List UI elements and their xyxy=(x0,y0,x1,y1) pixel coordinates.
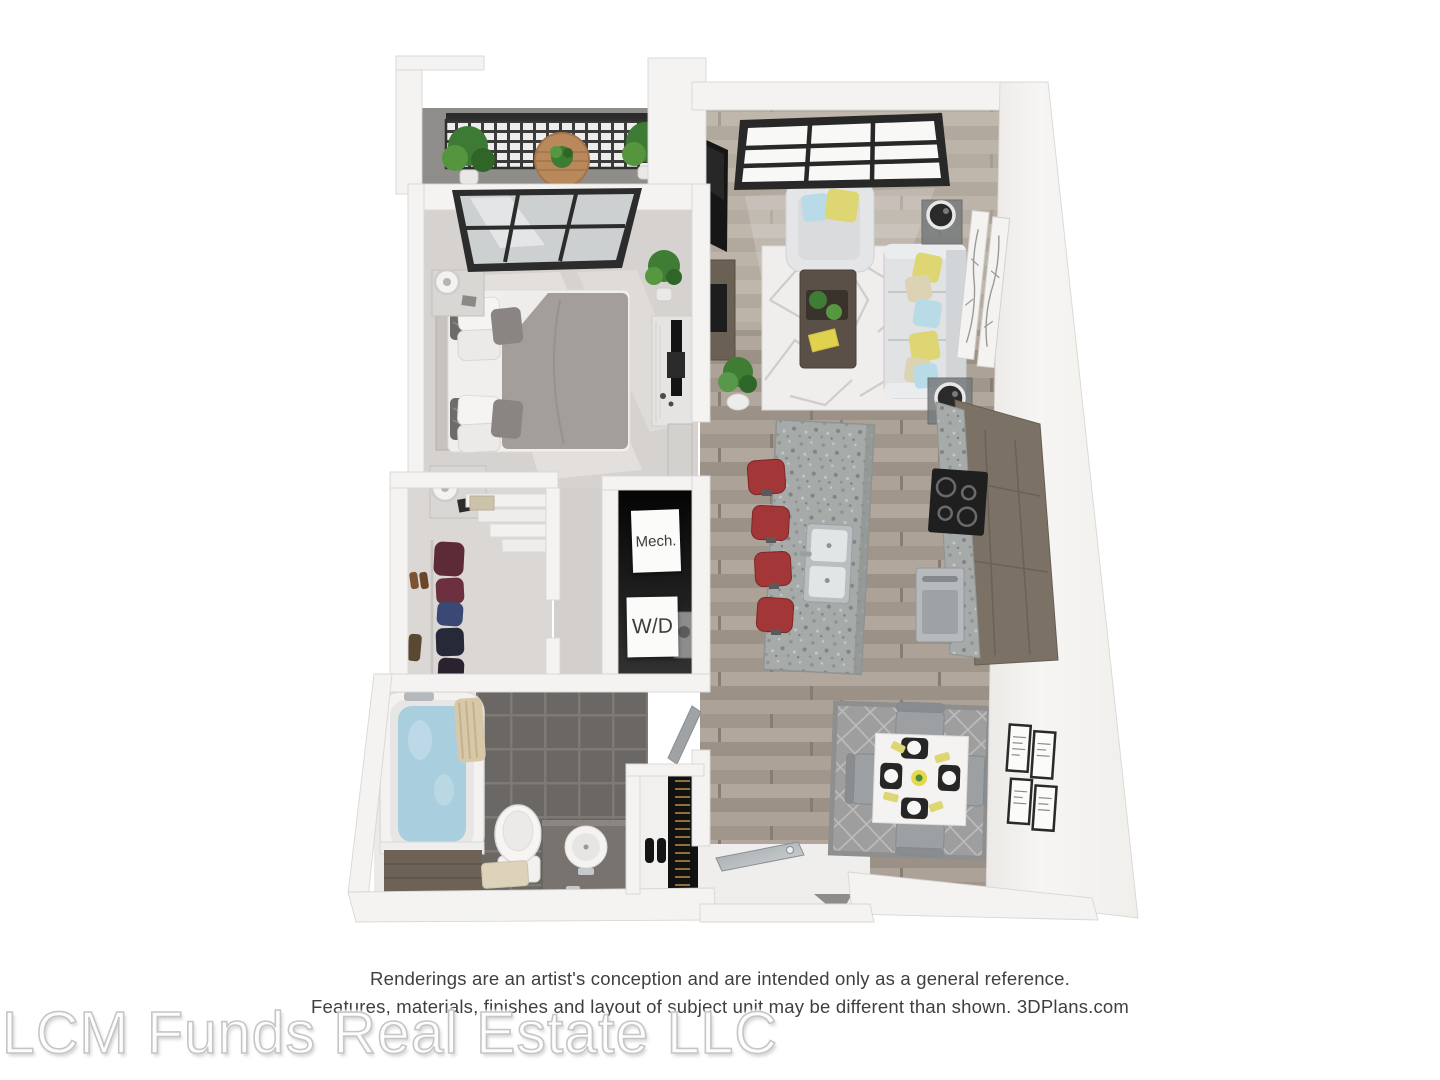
living-room-window xyxy=(734,113,950,190)
wd-label-text: W/D xyxy=(632,615,673,640)
floorplan-render: Mech. W/D Renderings are an artist's con… xyxy=(0,0,1440,1080)
cooktop-icon xyxy=(928,468,988,536)
faucet-icon xyxy=(578,868,594,875)
floorplan-graphic xyxy=(0,0,1440,1080)
oven-icon xyxy=(916,568,964,642)
armchair xyxy=(786,180,874,272)
bathroom-bottom-wall xyxy=(348,888,716,922)
door-handle-icon xyxy=(787,847,794,854)
end-table-top xyxy=(922,200,962,244)
balcony-top-stub xyxy=(396,56,484,70)
dresser-tv xyxy=(652,316,692,426)
bedroom-closet-divider xyxy=(390,472,558,488)
balcony-right-block xyxy=(648,58,706,192)
balcony-table xyxy=(535,133,589,187)
dining-table xyxy=(872,733,968,825)
coffee-table xyxy=(800,270,856,368)
mech-left-wall xyxy=(602,476,618,690)
disclaimer-line-1: Renderings are an artist's conception an… xyxy=(0,968,1440,990)
vestibule-floor xyxy=(554,488,606,686)
kitchen-island xyxy=(763,420,874,675)
bedroom-door-leaf xyxy=(668,424,692,478)
tub-faucet-icon xyxy=(404,692,434,701)
top-right-wall xyxy=(692,82,1022,110)
bedroom-left-wall xyxy=(408,184,424,488)
entry-closet-top-wall xyxy=(626,764,704,776)
vanity xyxy=(542,820,628,894)
bathroom-top-wall xyxy=(376,674,710,692)
nightstand-top xyxy=(432,270,484,316)
main-divider-upper xyxy=(692,184,710,422)
main-divider-mid xyxy=(692,476,710,692)
bath-mat xyxy=(481,860,529,888)
washer-dryer-label: W/D xyxy=(626,597,678,658)
bedroom-window xyxy=(452,188,642,272)
closet-left-wall xyxy=(390,476,408,692)
lamp-icon xyxy=(928,202,954,228)
entry-closet-left-wall xyxy=(626,764,640,894)
balcony-left-wall xyxy=(396,56,422,194)
mech-closet-label: Mech. xyxy=(631,509,681,573)
dining-area xyxy=(830,700,994,858)
entry-landing-outer-wall xyxy=(700,904,874,922)
mech-top-wall xyxy=(602,476,706,490)
company-watermark: LCM Funds Real Estate LLC xyxy=(2,999,778,1067)
sofa xyxy=(884,244,966,398)
tub-skirt xyxy=(380,842,484,892)
mech-label-text: Mech. xyxy=(635,532,676,550)
closet-vestibule-wall xyxy=(546,488,560,600)
table-plant-icon xyxy=(809,291,827,309)
